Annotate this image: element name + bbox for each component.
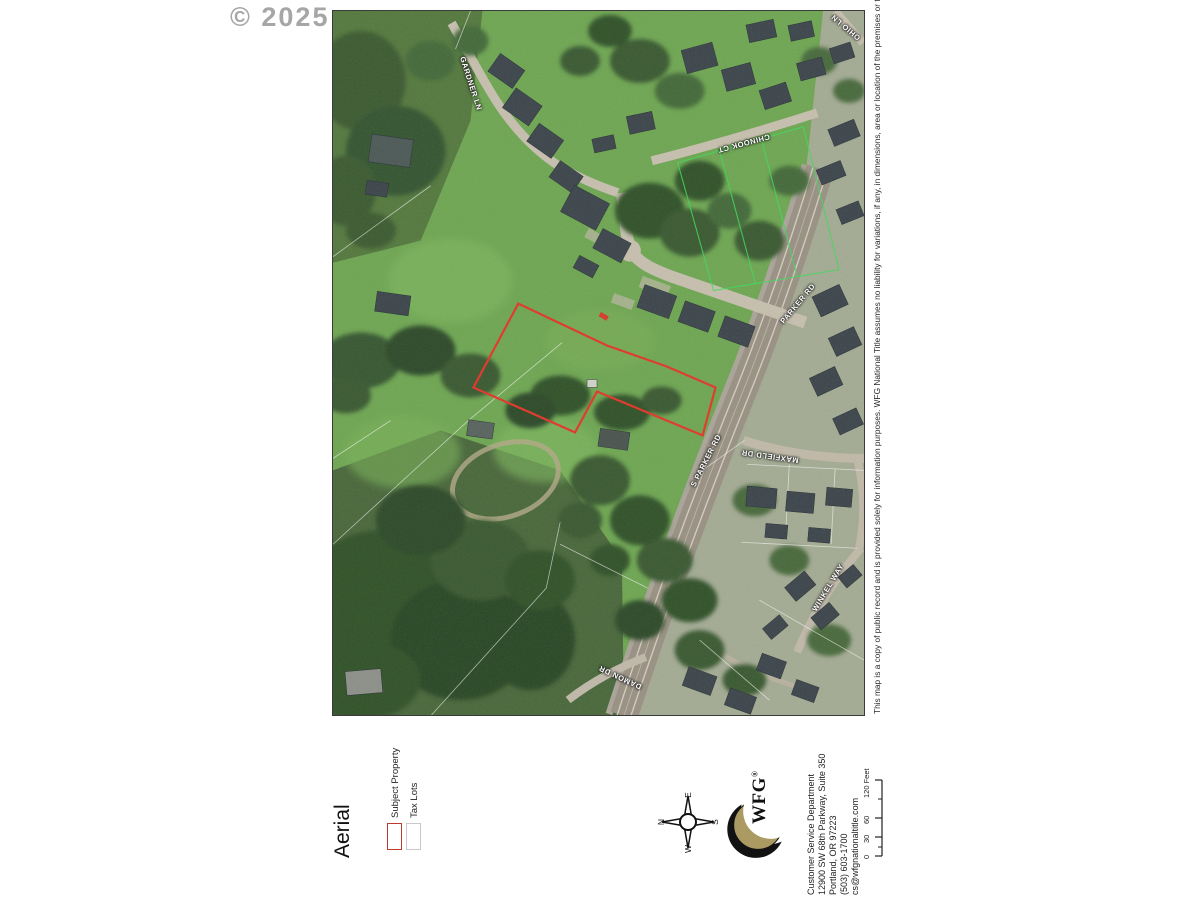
- legend-label-tax-lots: Tax Lots: [409, 778, 420, 818]
- address-line: Portland, OR 97223: [828, 748, 839, 895]
- wfg-wordmark: WFG: [749, 777, 770, 824]
- copyright-watermark: © 2025: [230, 2, 329, 33]
- map-title: Aerial: [331, 766, 355, 858]
- compass-w: W: [682, 843, 694, 855]
- address-line: 12900 SW 68th Parkway, Suite 350: [817, 748, 828, 895]
- compass-s: S: [709, 816, 721, 828]
- address-line: (503) 603-1700: [839, 748, 850, 895]
- legend-swatch-subject-property: [387, 823, 402, 850]
- disclaimer-text: This map is a copy of public record and …: [872, 18, 882, 714]
- compass-n: N: [655, 816, 667, 828]
- legend-label-subject-property: Subject Property: [390, 742, 401, 818]
- scale-tick-30: 30: [862, 831, 871, 843]
- wfg-logo-text: WFG®: [749, 776, 771, 824]
- scale-tick-60: 60: [862, 812, 871, 824]
- registered-mark: ®: [751, 771, 760, 777]
- address-block: Customer Service Department 12900 SW 68t…: [806, 748, 863, 895]
- disclaimer: This map is a copy of public record and …: [872, 18, 884, 714]
- address-email: cs@wfgnationaltitle.com: [850, 748, 861, 895]
- compass-e: E: [682, 789, 694, 801]
- scale-tick-120: 120 Feet: [862, 756, 871, 798]
- legend-swatch-tax-lots: [406, 823, 421, 850]
- aerial-photo: [333, 11, 864, 715]
- scale-tick-0: 0: [862, 851, 871, 859]
- aerial-map: GARDNER LN CHINOOK CT PARKER RD S PARKER…: [332, 10, 865, 716]
- address-line: Customer Service Department: [806, 748, 817, 895]
- photo-grain: [333, 11, 864, 715]
